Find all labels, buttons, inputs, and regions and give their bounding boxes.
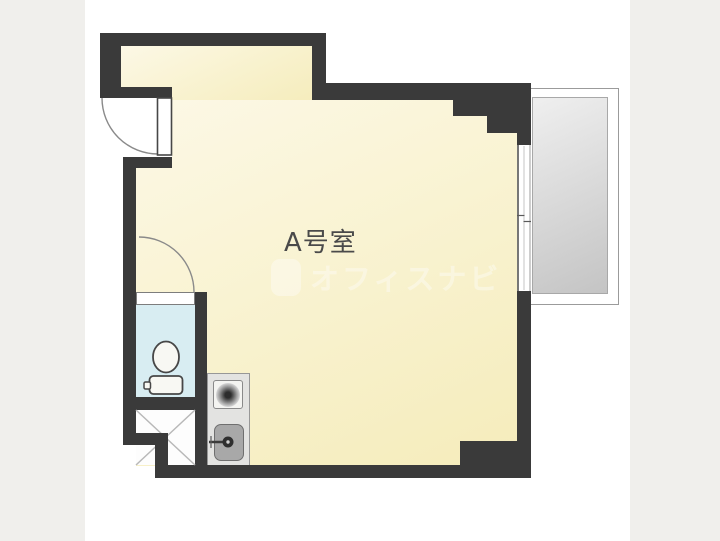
stove-burner-icon bbox=[216, 383, 240, 407]
wall-segment bbox=[100, 87, 172, 98]
x-marked-alcove bbox=[136, 410, 195, 465]
watermark: オフィスナビ bbox=[271, 256, 501, 298]
wall-segment bbox=[195, 292, 207, 478]
toilet-door-leaf bbox=[136, 292, 195, 305]
kitchen-sink bbox=[214, 424, 244, 461]
wall-segment bbox=[453, 97, 487, 116]
room-label: A号室 bbox=[284, 227, 374, 259]
wall-segment bbox=[312, 33, 326, 88]
floorplan-canvas: A号室 オフィスナビ bbox=[0, 0, 720, 541]
wall-segment bbox=[100, 33, 326, 46]
toilet-room bbox=[136, 305, 195, 397]
left-margin-band bbox=[0, 0, 85, 541]
right-margin-band bbox=[630, 0, 720, 541]
wall-segment bbox=[155, 465, 531, 478]
sliding-window bbox=[517, 145, 531, 291]
watermark-logo-icon bbox=[271, 259, 301, 296]
entrance-doorway-area bbox=[99, 98, 172, 157]
balcony-deck bbox=[532, 97, 608, 294]
wall-segment bbox=[123, 397, 195, 410]
wall-segment bbox=[517, 83, 531, 145]
watermark-text: オフィスナビ bbox=[310, 256, 501, 298]
